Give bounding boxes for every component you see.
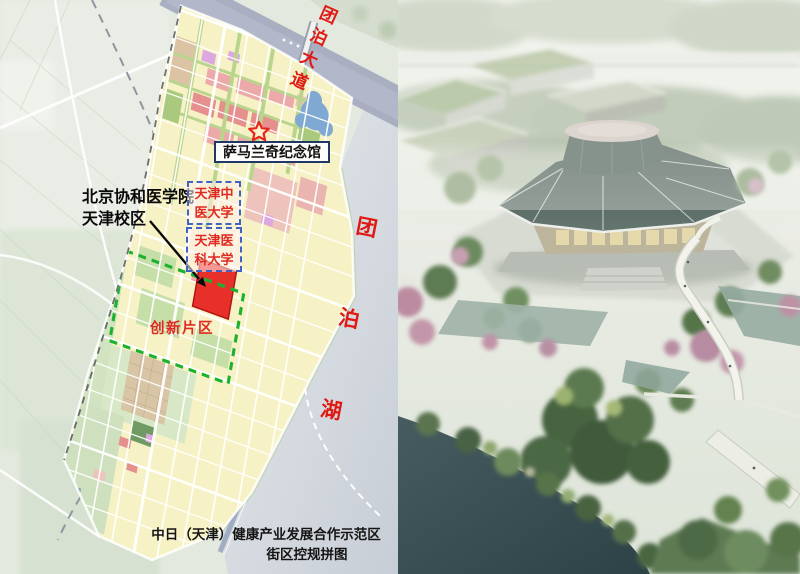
memorial-hall-label: 萨马兰奇纪念馆 [214,141,330,163]
building-steps [580,267,668,291]
planning-map: 团泊大道 团泊湖 萨马兰奇纪念馆 北京协和医学院 天津校区 天津中医大学 天津医… [0,0,398,574]
campus-label: 北京协和医学院 天津校区 [82,187,194,231]
university-label-medical: 天津医科大学 [186,227,242,272]
aerial-rendering-photo [398,0,800,574]
rendering-art [398,0,800,574]
university-label-tcm: 天津中医大学 [187,181,241,225]
atmosphere-haze [398,0,800,210]
composite-image: 团泊大道 团泊湖 萨马兰奇纪念馆 北京协和医学院 天津校区 天津中医大学 天津医… [0,0,800,574]
innovation-district-label: 创新片区 [150,317,214,338]
campus-label-line1: 北京协和医学院 [82,187,194,209]
campus-label-line2: 天津校区 [82,209,194,231]
